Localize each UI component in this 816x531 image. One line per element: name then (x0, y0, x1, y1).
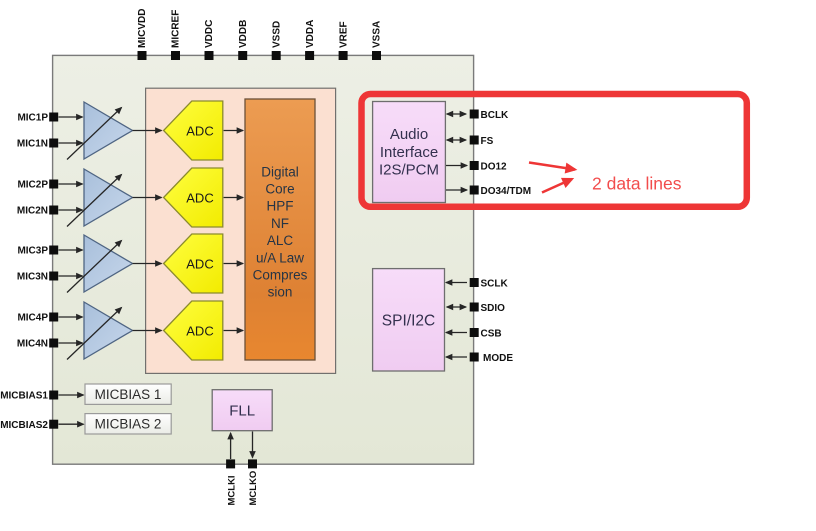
svg-text:MIC3P: MIC3P (17, 246, 48, 257)
svg-text:MIC1N: MIC1N (17, 139, 48, 150)
svg-text:MIC2N: MIC2N (17, 206, 48, 217)
svg-text:NF: NF (271, 216, 289, 231)
svg-text:ADC: ADC (186, 191, 213, 206)
svg-text:VREF: VREF (338, 21, 349, 48)
svg-text:Digital: Digital (261, 164, 299, 179)
svg-text:MICBIAS1: MICBIAS1 (0, 391, 48, 402)
svg-text:MIC4N: MIC4N (17, 339, 48, 350)
svg-text:VSSD: VSSD (271, 21, 282, 48)
svg-text:u/A Law: u/A Law (256, 250, 304, 265)
svg-text:2 data lines: 2 data lines (592, 174, 682, 194)
svg-text:MODE: MODE (483, 353, 513, 364)
svg-text:ALC: ALC (267, 233, 294, 248)
svg-text:MCLKI: MCLKI (226, 475, 237, 505)
svg-text:VDDC: VDDC (204, 20, 215, 48)
svg-text:SPI/I2C: SPI/I2C (382, 313, 435, 330)
svg-text:VDDA: VDDA (305, 20, 316, 48)
svg-text:MIC1P: MIC1P (17, 113, 48, 124)
svg-text:MICBIAS 1: MICBIAS 1 (95, 387, 162, 402)
svg-text:CSB: CSB (481, 328, 502, 339)
svg-text:DO12: DO12 (481, 161, 508, 172)
svg-text:MICBIAS 2: MICBIAS 2 (95, 417, 162, 432)
svg-text:Audio: Audio (390, 126, 428, 143)
svg-text:VSSA: VSSA (372, 21, 383, 48)
svg-text:BCLK: BCLK (481, 110, 510, 121)
svg-text:Core: Core (265, 182, 294, 197)
svg-text:MIC3N: MIC3N (17, 272, 48, 283)
svg-text:ADC: ADC (186, 257, 213, 272)
svg-text:MICREF: MICREF (171, 10, 182, 48)
svg-text:ADC: ADC (186, 324, 213, 339)
svg-text:HPF: HPF (267, 199, 294, 214)
svg-text:MIC2P: MIC2P (17, 180, 48, 191)
svg-text:FLL: FLL (229, 403, 255, 420)
svg-text:VDDB: VDDB (238, 20, 249, 48)
svg-text:ADC: ADC (186, 124, 213, 139)
svg-text:MCLKO: MCLKO (248, 471, 259, 506)
svg-text:FS: FS (481, 136, 494, 147)
svg-text:Compres: Compres (253, 268, 308, 283)
svg-text:MIC4P: MIC4P (17, 313, 48, 324)
svg-text:MICBIAS2: MICBIAS2 (0, 420, 48, 431)
svg-text:sion: sion (268, 285, 293, 300)
svg-text:Interface: Interface (380, 144, 438, 161)
svg-text:I2S/PCM: I2S/PCM (379, 162, 439, 179)
svg-text:SDIO: SDIO (481, 303, 506, 314)
svg-text:SCLK: SCLK (481, 278, 509, 289)
svg-text:MICVDD: MICVDD (137, 9, 148, 48)
svg-text:DO34/TDM: DO34/TDM (481, 186, 532, 197)
